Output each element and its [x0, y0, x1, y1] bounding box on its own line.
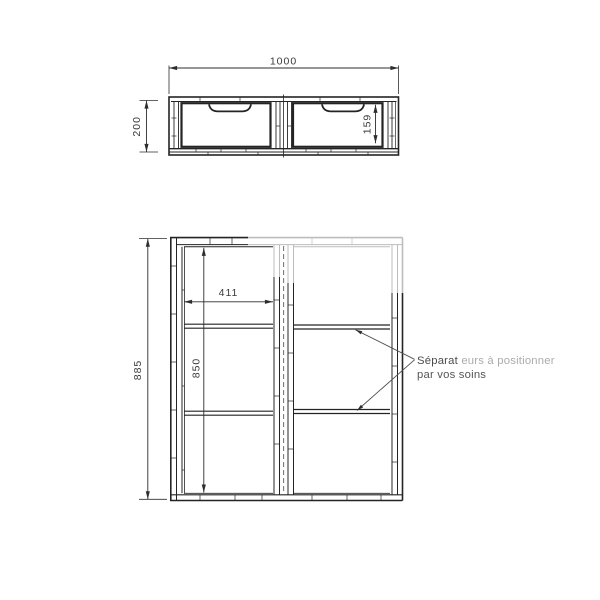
dim-bay-height-850-label: 850: [190, 358, 202, 379]
right-bay-separator-top: [293, 325, 390, 329]
technical-drawing: 1000 200 159: [0, 0, 600, 600]
left-bay-separator-bottom: [184, 411, 273, 415]
leader-line-bottom: [357, 360, 415, 411]
separators: [184, 324, 390, 415]
dim-drawer-159: 159: [362, 105, 376, 143]
left-bay-separator-top: [184, 324, 273, 328]
dim-height-885-label: 885: [132, 360, 144, 381]
dim-width-1000-label: 1000: [270, 56, 297, 68]
right-bay-separator-bottom: [293, 410, 390, 414]
left-drawer: [182, 103, 271, 147]
front-view: 885 411 850 Séparat eurs à positionner p…: [132, 238, 555, 501]
dim-height-885: 885: [132, 239, 167, 500]
right-drawer-handle-notch: [322, 104, 364, 111]
dim-bay-width-411-label: 411: [219, 287, 239, 299]
dim-width-1000: 1000: [169, 56, 399, 95]
front-view-joint-ticks: [171, 238, 398, 501]
dim-bay-height-850: 850: [190, 248, 204, 493]
annotation-line-1: Séparat eurs à positionner: [417, 355, 555, 367]
dim-drawer-159-label: 159: [362, 114, 374, 135]
top-view: 1000 200 159: [131, 56, 399, 158]
annotation-line-2: par vos soins: [417, 369, 486, 381]
front-view-frame: [170, 238, 403, 501]
dim-bay-width-411: 411: [184, 287, 273, 302]
dim-height-200: 200: [131, 101, 158, 153]
separators-annotation: Séparat eurs à positionner par vos soins: [356, 330, 555, 411]
dim-height-200-label: 200: [131, 116, 143, 137]
leader-line-top: [356, 330, 415, 360]
left-drawer-handle-notch: [209, 104, 251, 111]
drawing-canvas: 1000 200 159: [0, 0, 600, 600]
